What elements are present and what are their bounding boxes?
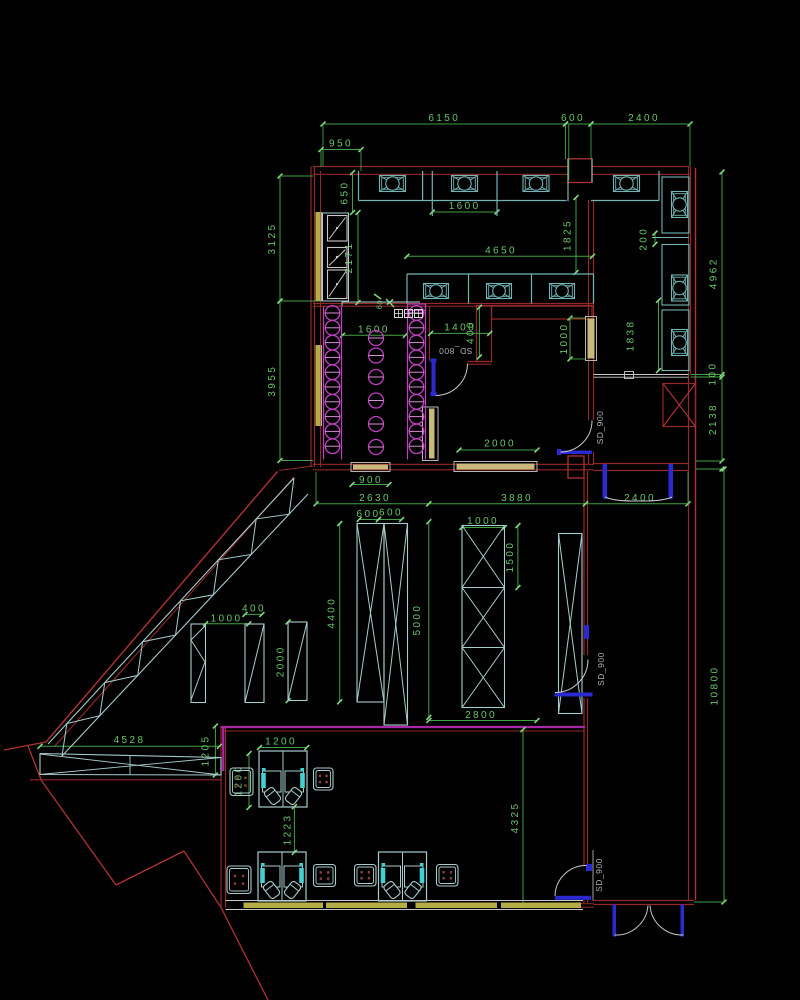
svg-text:950: 950 bbox=[329, 139, 353, 150]
svg-text:4528: 4528 bbox=[114, 735, 146, 746]
svg-text:6150: 6150 bbox=[428, 113, 460, 124]
svg-text:2171: 2171 bbox=[344, 242, 355, 274]
svg-text:600: 600 bbox=[379, 508, 403, 519]
svg-text:2138: 2138 bbox=[708, 403, 719, 435]
svg-text:4962: 4962 bbox=[709, 257, 720, 289]
svg-text:4650: 4650 bbox=[485, 245, 517, 256]
svg-text:2400: 2400 bbox=[624, 493, 656, 504]
svg-text:4325: 4325 bbox=[510, 802, 521, 834]
svg-text:1825: 1825 bbox=[563, 219, 574, 251]
svg-text:5000: 5000 bbox=[412, 604, 423, 636]
svg-text:SD_900: SD_900 bbox=[595, 411, 605, 445]
svg-text:200: 200 bbox=[639, 227, 650, 251]
svg-text:2630: 2630 bbox=[359, 493, 391, 504]
svg-text:SD_800: SD_800 bbox=[439, 346, 473, 356]
svg-text:3880: 3880 bbox=[501, 493, 533, 504]
svg-text:3955: 3955 bbox=[267, 365, 278, 397]
svg-text:1500: 1500 bbox=[505, 541, 516, 573]
svg-text:400: 400 bbox=[466, 320, 477, 344]
svg-text:1000: 1000 bbox=[211, 614, 243, 625]
svg-text:10800: 10800 bbox=[710, 666, 721, 706]
svg-text:60: 60 bbox=[374, 299, 384, 310]
svg-text:1200: 1200 bbox=[234, 765, 245, 797]
svg-text:100: 100 bbox=[708, 362, 719, 386]
svg-text:1838: 1838 bbox=[626, 320, 637, 352]
svg-text:650: 650 bbox=[340, 181, 351, 205]
svg-text:2400: 2400 bbox=[628, 113, 660, 124]
svg-text:900: 900 bbox=[359, 475, 383, 486]
svg-text:2800: 2800 bbox=[465, 710, 497, 721]
svg-text:1000: 1000 bbox=[559, 323, 570, 355]
svg-text:1600: 1600 bbox=[358, 324, 390, 335]
svg-text:SD_900: SD_900 bbox=[596, 652, 606, 686]
svg-text:1223: 1223 bbox=[283, 814, 294, 846]
svg-text:3125: 3125 bbox=[267, 223, 278, 255]
svg-text:600: 600 bbox=[357, 509, 381, 520]
svg-text:600: 600 bbox=[561, 113, 585, 124]
svg-text:2000: 2000 bbox=[484, 439, 516, 450]
svg-text:SD_900: SD_900 bbox=[594, 858, 604, 892]
svg-text:4400: 4400 bbox=[327, 597, 338, 629]
svg-text:2000: 2000 bbox=[276, 645, 287, 677]
svg-text:1200: 1200 bbox=[265, 737, 297, 748]
svg-text:400: 400 bbox=[242, 604, 266, 615]
svg-text:1205: 1205 bbox=[201, 735, 212, 767]
svg-text:1600: 1600 bbox=[449, 201, 481, 212]
